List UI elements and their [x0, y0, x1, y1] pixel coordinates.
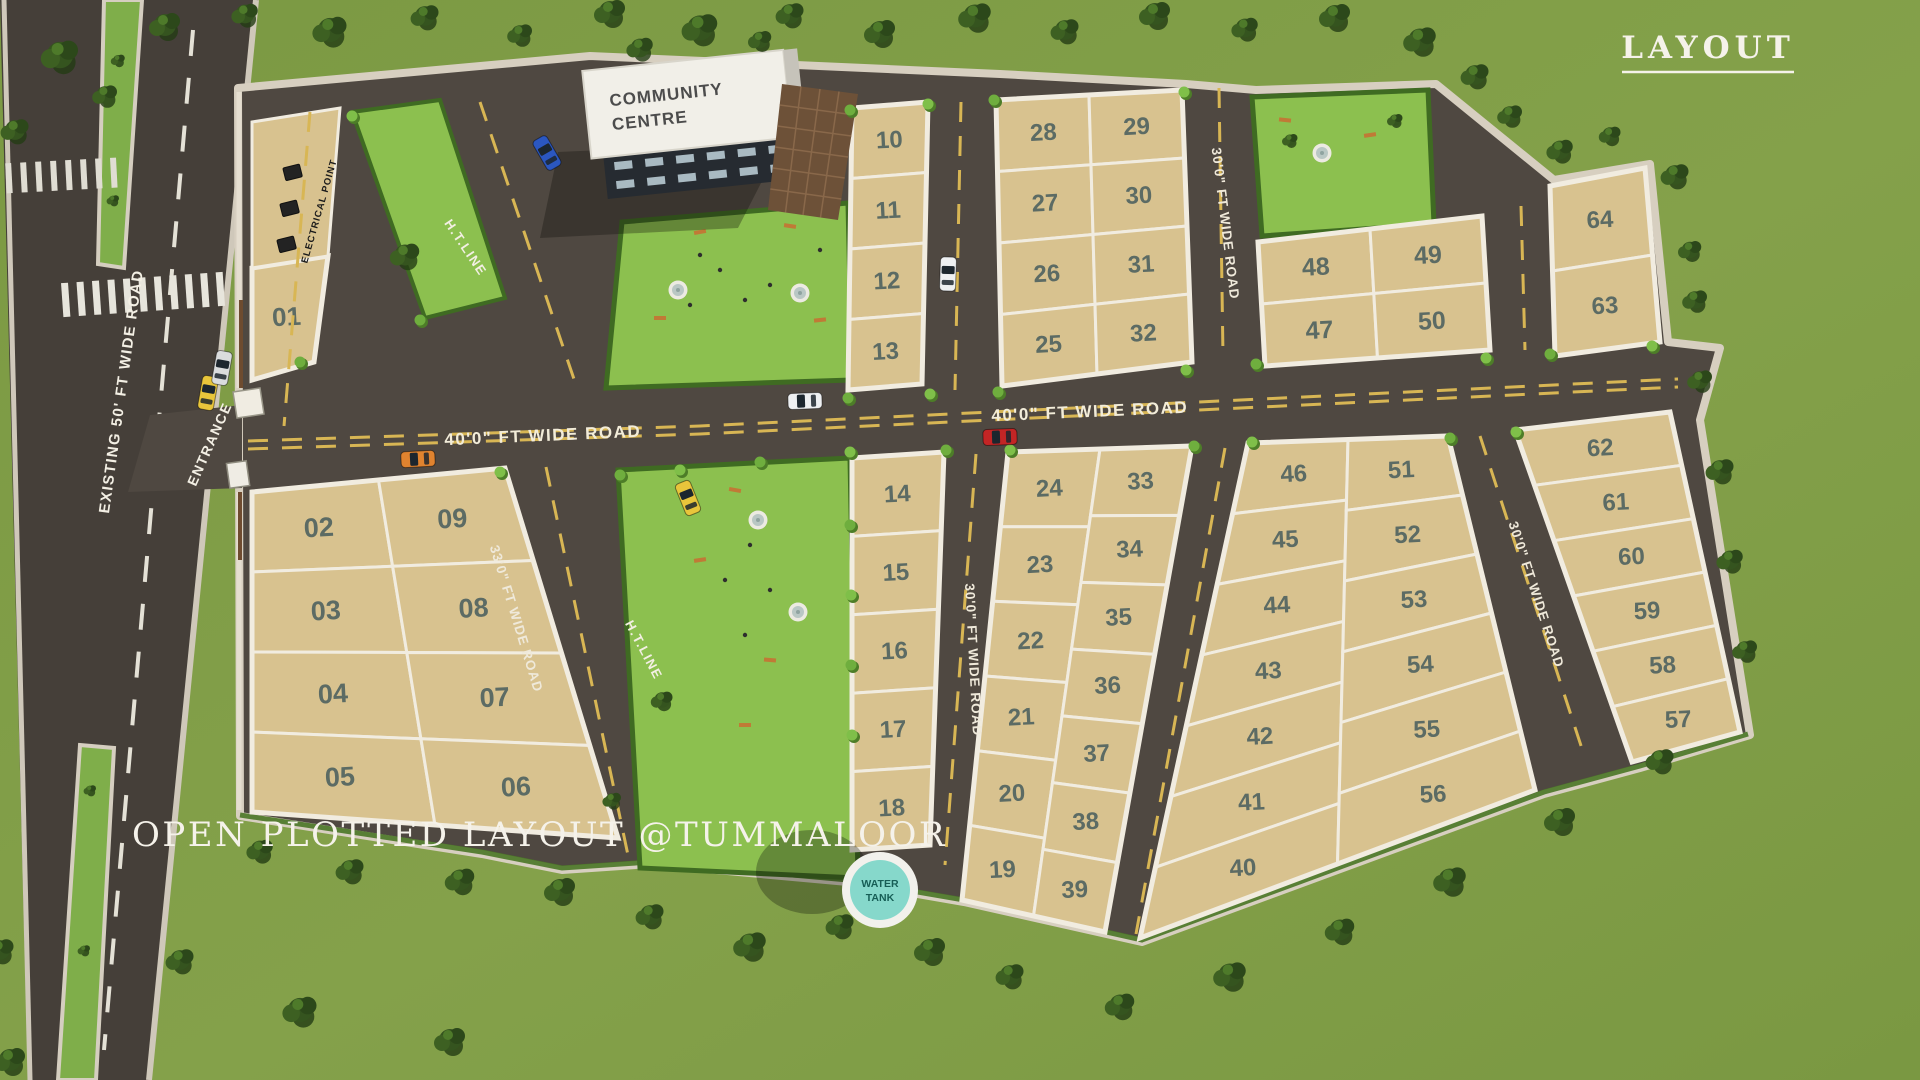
- plot-number: 19: [988, 856, 1016, 884]
- plot-number: 64: [1586, 206, 1615, 234]
- plot-number: 50: [1417, 306, 1446, 335]
- bench: [654, 316, 666, 320]
- electrical-point: ELECTRICAL POINT: [252, 108, 340, 268]
- plot-number: 02: [303, 512, 335, 544]
- block-b4750: 48474950: [1258, 216, 1490, 366]
- plot-number: 45: [1271, 526, 1299, 554]
- plot-number: 29: [1123, 113, 1151, 141]
- plot-number: 59: [1633, 597, 1661, 625]
- plot-number: 16: [880, 637, 908, 665]
- plot-number: 26: [1033, 260, 1061, 288]
- plot-number: 35: [1105, 603, 1133, 631]
- person: [748, 543, 752, 547]
- plot-number: 40: [1229, 854, 1257, 882]
- northeast-park: [1252, 90, 1434, 236]
- car: [401, 450, 436, 468]
- bench: [739, 723, 751, 727]
- plot-number: 22: [1017, 627, 1045, 655]
- plot-number: 33: [1126, 467, 1154, 495]
- plot-number: 14: [883, 480, 912, 508]
- plot-number: 08: [458, 592, 490, 624]
- gate-canopy: [233, 388, 264, 418]
- plot-number: 24: [1035, 474, 1064, 502]
- plot-number: 31: [1127, 251, 1155, 279]
- plot-number: 17: [879, 716, 907, 744]
- plot-number: 54: [1406, 651, 1435, 679]
- plot-number: 62: [1586, 434, 1614, 462]
- water-tank-label-2: TANK: [866, 892, 895, 904]
- plot-number: 12: [873, 267, 901, 295]
- plot-number: 32: [1129, 319, 1157, 347]
- plot-number: 53: [1400, 586, 1428, 614]
- person: [768, 588, 772, 592]
- plot-number: 44: [1263, 591, 1292, 619]
- plot-number: 47: [1305, 316, 1334, 345]
- plot-number: 52: [1394, 521, 1422, 549]
- plot-number: 28: [1029, 119, 1057, 147]
- plot-number: 60: [1617, 543, 1645, 571]
- plot-number: 21: [1007, 703, 1035, 731]
- project-title: OPEN PLOTTED LAYOUT @TUMMALOOR: [132, 815, 947, 855]
- plot-number: 41: [1237, 788, 1265, 816]
- block-c6364: 6463: [1550, 168, 1660, 356]
- plot-number: 34: [1116, 535, 1145, 563]
- person: [718, 268, 722, 272]
- fountain: [749, 511, 768, 530]
- plot-number: 63: [1591, 292, 1619, 320]
- car: [788, 392, 823, 409]
- water-tank-top: [850, 860, 910, 920]
- plot-number: 11: [875, 197, 902, 225]
- plot-number: 61: [1602, 488, 1630, 516]
- plot-number: 15: [882, 559, 910, 587]
- person: [743, 298, 747, 302]
- plot-number: 56: [1419, 780, 1447, 808]
- plot-number: 43: [1254, 657, 1282, 685]
- plot-number: 46: [1280, 460, 1308, 488]
- person: [723, 578, 727, 582]
- plot-number: 58: [1649, 651, 1677, 679]
- plot-number: 07: [479, 682, 511, 714]
- plot-number: 10: [875, 126, 903, 154]
- fountain: [669, 281, 688, 300]
- person: [688, 303, 692, 307]
- page-title: LAYOUT: [1621, 30, 1795, 66]
- person: [698, 253, 702, 257]
- block-b2532: 2827262529303132: [996, 90, 1192, 386]
- plot-number: 01: [271, 301, 301, 332]
- gate-booth: [226, 461, 249, 489]
- plot-number: 37: [1083, 740, 1111, 768]
- plot-number: 51: [1387, 456, 1415, 484]
- water-tank-label-1: WATER: [861, 878, 899, 890]
- block-c1013: 10111213: [848, 102, 928, 390]
- plot-number: 39: [1061, 876, 1089, 904]
- plot-number: 42: [1246, 723, 1274, 751]
- plot-number: 25: [1035, 331, 1063, 359]
- plot-number: 57: [1664, 706, 1692, 734]
- car: [983, 428, 1018, 445]
- person: [768, 283, 772, 287]
- fountain: [791, 284, 810, 303]
- person: [743, 633, 747, 637]
- plot-number: 03: [310, 595, 342, 627]
- plot-number: 36: [1094, 672, 1122, 700]
- plot-number: 23: [1026, 551, 1054, 579]
- plot-number: 20: [998, 779, 1026, 807]
- plot-number: 49: [1413, 241, 1442, 270]
- plot-number: 09: [437, 503, 469, 535]
- person: [818, 248, 822, 252]
- plot-number: 38: [1072, 808, 1100, 836]
- fountain: [1313, 144, 1332, 163]
- car: [939, 257, 956, 292]
- plot-number: 13: [872, 338, 900, 366]
- plotted-layout-render: EXISTING 50' FT WIDE ROAD H.T.LINE H.T.L…: [0, 0, 1920, 1080]
- plot-number: 04: [317, 678, 349, 710]
- fountain: [789, 603, 808, 622]
- plot-number: 06: [500, 771, 532, 803]
- block-c1418: 1415161718: [852, 452, 944, 850]
- plot-number: 27: [1031, 189, 1059, 217]
- plot-number: 30: [1125, 182, 1153, 210]
- plot-number: 55: [1413, 716, 1441, 744]
- plot-number: 48: [1301, 252, 1330, 281]
- plot-number: 05: [324, 761, 356, 793]
